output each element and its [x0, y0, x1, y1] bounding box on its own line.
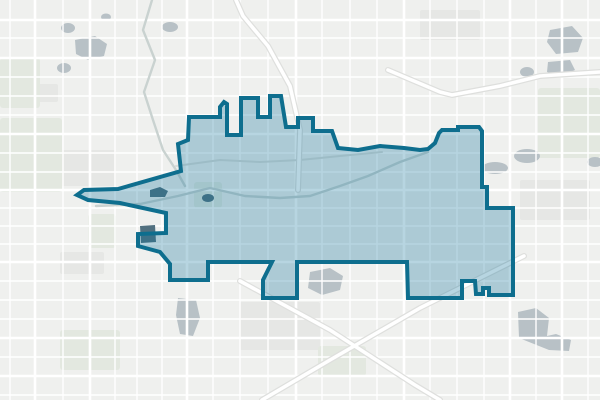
pond [162, 22, 178, 32]
city-block-patch [240, 302, 320, 350]
city-block-patch [420, 10, 480, 40]
map-view[interactable] [0, 0, 600, 400]
map-canvas [0, 0, 600, 400]
city-block-patch [520, 180, 590, 220]
park-area [538, 88, 600, 158]
park-area [88, 214, 116, 248]
pond [57, 63, 71, 73]
city-block-patch [60, 150, 116, 186]
